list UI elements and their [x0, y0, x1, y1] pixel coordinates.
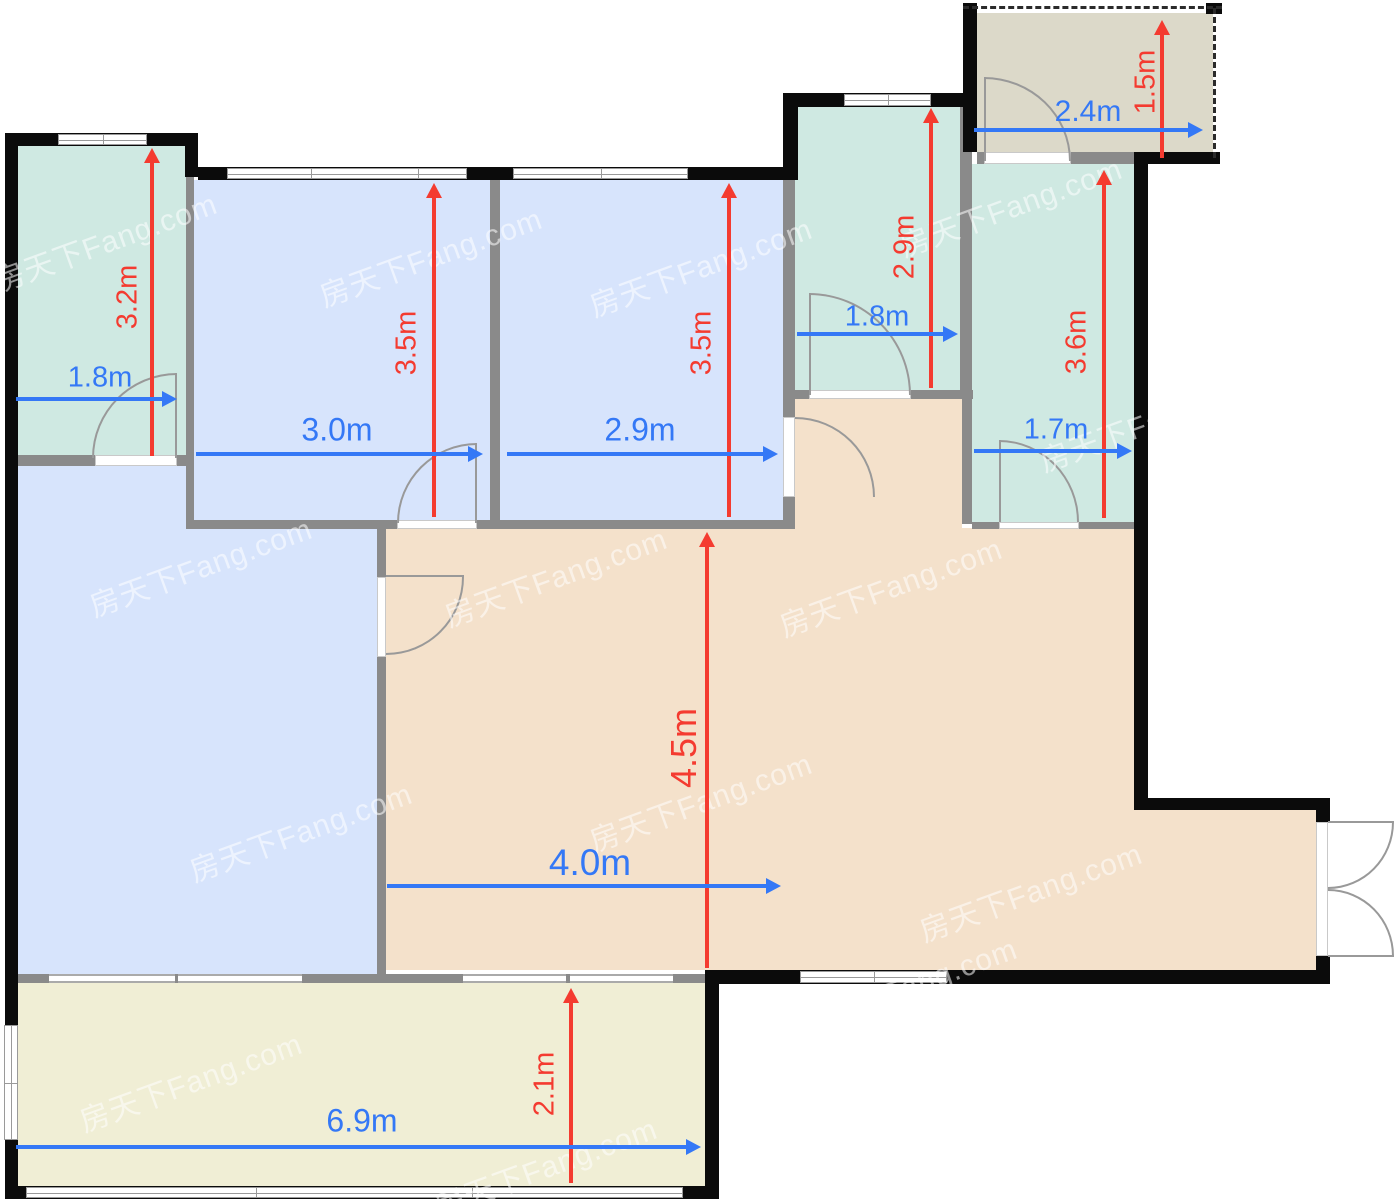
arrow-line — [705, 544, 709, 968]
door-opening-entry — [1316, 822, 1328, 956]
dimension-label: 2.9m — [604, 412, 675, 449]
door-opening-bathroom-b — [999, 522, 1079, 529]
interior-wall — [977, 152, 984, 164]
arrow-line — [974, 449, 1120, 453]
door-opening-living — [377, 577, 386, 657]
arrow-head-up — [1096, 170, 1112, 185]
floor-plan: 房天下Fang.com房天下Fang.com房天下Fang.com房天下Fang… — [0, 0, 1400, 1199]
window-divider — [103, 135, 104, 144]
dimension-label: 3.5m — [686, 311, 719, 375]
door-panel — [1328, 955, 1394, 957]
dimension-label: 3.0m — [301, 412, 372, 449]
interior-wall — [911, 390, 973, 399]
arrow-line — [727, 195, 731, 517]
interior-wall — [18, 455, 95, 466]
sliding-window-segment — [178, 974, 302, 983]
exterior-wall — [1134, 798, 1330, 810]
arrow-head-right — [943, 326, 958, 342]
window-divider — [5, 1083, 17, 1084]
dimension-label: 4.5m — [663, 708, 705, 788]
arrow-head-up — [721, 183, 737, 198]
arrow-head-right — [1188, 122, 1203, 138]
window-north-bedroom — [58, 134, 147, 145]
dimension-label: 1.8m — [68, 362, 132, 395]
door-panel — [1328, 821, 1394, 823]
arrow-head-right — [686, 1139, 701, 1155]
dimension-label: 1.8m — [845, 301, 909, 334]
sliding-window-segment — [49, 974, 175, 983]
arrow-line — [16, 1145, 689, 1149]
exterior-wall — [705, 970, 1330, 984]
arrow-head-right — [1117, 443, 1132, 459]
arrow-head-up — [426, 183, 442, 198]
arrow-line — [387, 884, 769, 888]
dimension-label: 2.9m — [889, 215, 922, 279]
arrow-line — [929, 120, 933, 388]
arrow-head-right — [162, 391, 177, 407]
window-divider — [888, 95, 889, 105]
arrow-head-up — [1154, 20, 1170, 35]
arrow-line — [507, 452, 766, 456]
window-divider — [601, 169, 602, 178]
dimension-label: 3.6m — [1061, 310, 1094, 374]
window-balcony-west — [4, 1025, 18, 1140]
window-midline — [228, 174, 466, 175]
dimension-label: 2.4m — [1055, 95, 1122, 129]
sliding-window-segment — [570, 974, 673, 983]
window-bedroom-2 — [513, 168, 688, 179]
exterior-wall — [1134, 152, 1148, 810]
door-panel — [386, 575, 464, 577]
arrow-line — [16, 397, 165, 401]
exterior-wall — [705, 970, 719, 1199]
arrow-line — [196, 452, 471, 456]
room-living-west — [18, 465, 186, 975]
window-divider — [311, 169, 312, 178]
arrow-line — [569, 1000, 573, 1183]
interior-wall — [783, 168, 795, 417]
door-arc-entry-top — [1328, 822, 1394, 889]
dimension-label: 3.5m — [391, 311, 424, 375]
interior-wall — [377, 529, 386, 577]
dashed-porch-right — [1213, 8, 1216, 158]
arrow-head-up — [563, 988, 579, 1003]
interior-wall — [1079, 522, 1134, 529]
window-balcony-south — [26, 1187, 683, 1198]
interior-wall — [177, 455, 188, 466]
window-bathroom-a — [844, 94, 931, 106]
window-bedroom-1 — [227, 168, 467, 179]
dimension-label: 1.7m — [1024, 414, 1088, 447]
dimension-label: 4.0m — [549, 842, 631, 884]
dimension-label: 1.5m — [1130, 50, 1163, 114]
interior-wall — [962, 390, 972, 524]
dimension-label: 2.1m — [529, 1052, 562, 1116]
door-arc-entry-bottom — [1328, 889, 1394, 956]
arrow-head-up — [923, 108, 939, 123]
interior-wall — [783, 390, 809, 399]
door-panel — [809, 293, 811, 395]
exterior-wall — [185, 133, 198, 177]
interior-wall — [783, 497, 795, 528]
door-opening-bedroom-2 — [783, 417, 795, 497]
window-divider — [256, 1188, 257, 1197]
room-living-west2 — [186, 529, 377, 975]
window-midline — [27, 1193, 682, 1194]
arrow-head-right — [468, 446, 483, 462]
arrow-line — [150, 160, 154, 456]
arrow-head-up — [144, 148, 160, 163]
dimension-label: 6.9m — [326, 1103, 397, 1140]
arrow-head-right — [766, 878, 781, 894]
sliding-window-segment — [463, 974, 566, 983]
arrow-line — [1102, 182, 1106, 518]
window-divider — [418, 169, 419, 178]
arrow-head-up — [699, 532, 715, 547]
dimension-label: 3.2m — [112, 265, 145, 329]
door-panel — [175, 373, 177, 458]
arrow-line — [432, 195, 436, 517]
room-dining-east — [1134, 810, 1316, 970]
arrow-head-right — [763, 446, 778, 462]
door-panel — [984, 77, 986, 161]
dashed-porch-top — [963, 6, 1222, 9]
